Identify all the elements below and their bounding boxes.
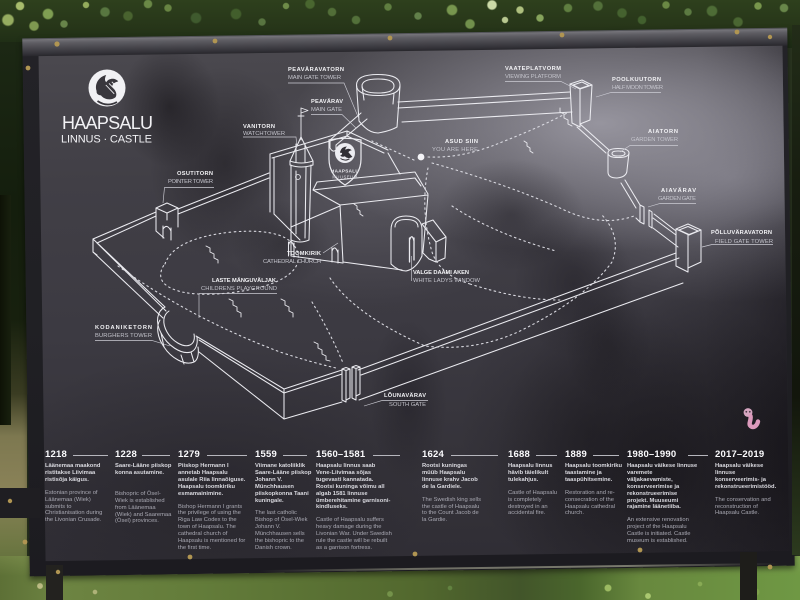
svg-text:FIELD GATE TOWER: FIELD GATE TOWER bbox=[715, 239, 773, 245]
svg-text:WATCHTOWER: WATCHTOWER bbox=[243, 131, 285, 137]
svg-text:AIATORN: AIATORN bbox=[648, 129, 678, 135]
svg-text:PEAVÄRAVATORN: PEAVÄRAVATORN bbox=[288, 66, 344, 73]
svg-text:POINTER TOWER: POINTER TOWER bbox=[168, 179, 213, 185]
svg-text:BURGHERS TOWER: BURGHERS TOWER bbox=[95, 333, 152, 339]
svg-text:LASTE MÄNGUVÄLJAK: LASTE MÄNGUVÄLJAK bbox=[212, 277, 277, 284]
svg-text:GARDEN TOWER: GARDEN TOWER bbox=[631, 137, 678, 143]
svg-text:HAAPSALU: HAAPSALU bbox=[331, 169, 359, 174]
svg-text:POOLKUUTORN: POOLKUUTORN bbox=[612, 77, 661, 83]
svg-text:SOUTH GATE: SOUTH GATE bbox=[389, 402, 426, 408]
svg-text:VIEWING PLATFORM: VIEWING PLATFORM bbox=[505, 74, 561, 80]
svg-text:ASUD SIIN: ASUD SIIN bbox=[445, 139, 478, 145]
svg-text:HALF MOON TOWER: HALF MOON TOWER bbox=[612, 85, 663, 91]
svg-text:MUUSEUM: MUUSEUM bbox=[332, 175, 357, 180]
svg-text:LINNUS · CASTLE: LINNUS · CASTLE bbox=[61, 134, 152, 146]
svg-text:AIAVÄRAV: AIAVÄRAV bbox=[661, 187, 696, 194]
svg-text:MAIN GATE TOWER: MAIN GATE TOWER bbox=[288, 75, 341, 81]
svg-text:WHITE LADYS WINDOW: WHITE LADYS WINDOW bbox=[413, 278, 481, 284]
svg-text:MAIN GATE: MAIN GATE bbox=[311, 107, 342, 113]
svg-text:VAATEPLATVORM: VAATEPLATVORM bbox=[505, 66, 561, 72]
svg-text:VANITORN: VANITORN bbox=[243, 124, 275, 130]
svg-text:OSUTITORN: OSUTITORN bbox=[177, 171, 213, 177]
svg-text:KODANIKETORN: KODANIKETORN bbox=[95, 325, 152, 331]
svg-text:CATHEDRAL CHURCH: CATHEDRAL CHURCH bbox=[263, 259, 321, 265]
svg-text:CHILDRENS PLAYGROUND: CHILDRENS PLAYGROUND bbox=[201, 286, 277, 292]
svg-text:GARDEN GATE: GARDEN GATE bbox=[658, 196, 696, 202]
svg-text:TOOMKIRIK: TOOMKIRIK bbox=[287, 251, 322, 257]
svg-text:HAAPSALU: HAAPSALU bbox=[62, 113, 153, 133]
svg-text:LÕUNAVÄRAV: LÕUNAVÄRAV bbox=[384, 392, 426, 399]
svg-text:VALGE DAAMI AKEN: VALGE DAAMI AKEN bbox=[413, 270, 469, 276]
svg-text:PEAVÄRAV: PEAVÄRAV bbox=[311, 98, 343, 105]
svg-text:YOU ARE HERE: YOU ARE HERE bbox=[432, 147, 478, 153]
svg-text:PÕLLUVÄRAVATORN: PÕLLUVÄRAVATORN bbox=[711, 229, 772, 236]
